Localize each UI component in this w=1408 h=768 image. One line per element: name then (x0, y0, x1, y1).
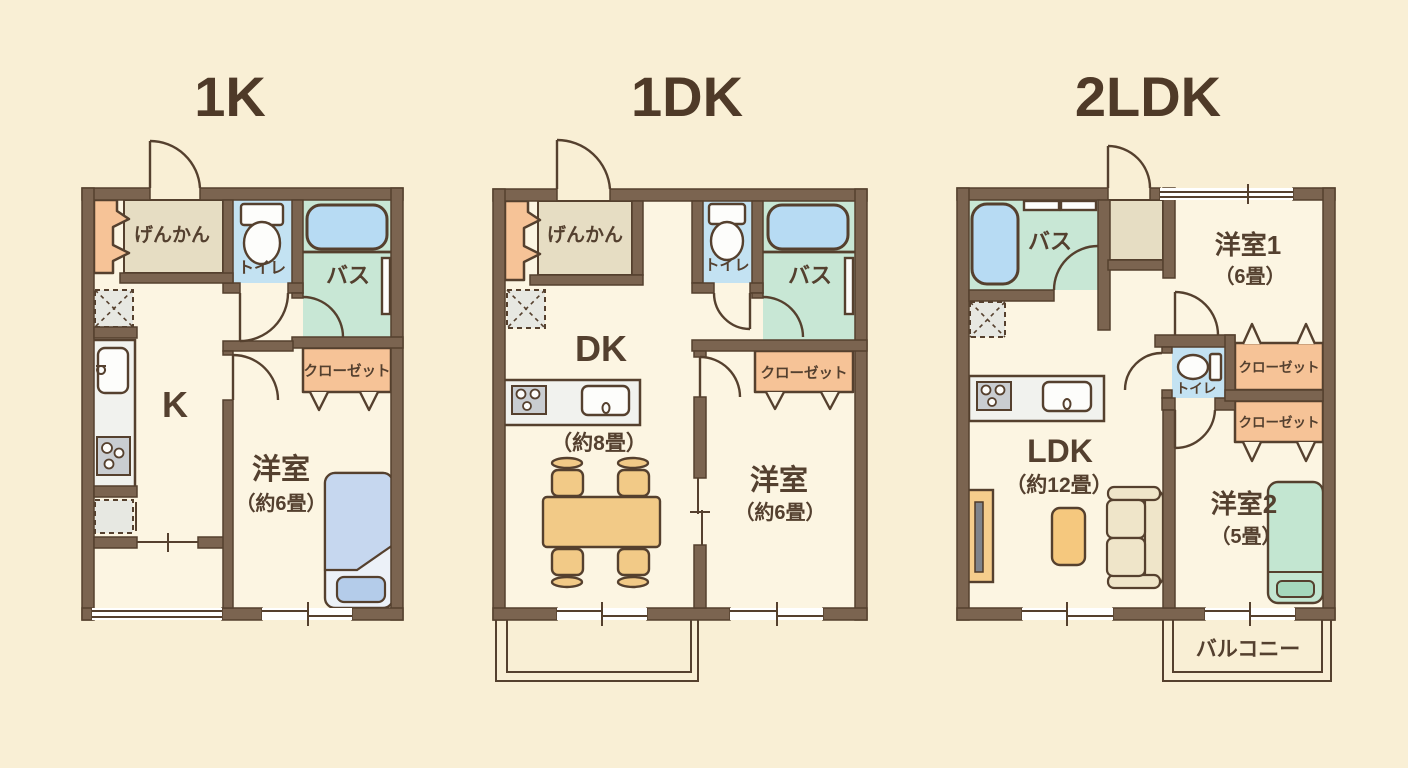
label-bath-1k: バス (326, 263, 370, 288)
sink-2ldk (1043, 382, 1091, 411)
floor-plan-2ldk: 2LDK (957, 65, 1335, 681)
toilet-bowl-1dk (711, 222, 743, 260)
tv-board-2ldk (967, 490, 993, 582)
bathtub-2ldk (972, 204, 1018, 284)
label-bedroom1-2ldk: 洋室1 (1215, 230, 1281, 260)
bath-shelf-2ldk-2 (1061, 201, 1096, 210)
label-bedroom-size-1k: （約6畳） (235, 491, 326, 515)
bathtub-1k (307, 205, 387, 249)
balcony-1dk (496, 620, 698, 681)
bathtub-1dk (768, 205, 848, 249)
label-bedroom2-size-2ldk: （5畳） (1210, 525, 1281, 548)
burner-2ldk-2 (996, 386, 1005, 395)
label-dk-size-1dk: （約8畳） (551, 431, 647, 455)
plan-title-1k: 1K (194, 65, 266, 128)
label-toilet-1dk: トイレ (704, 257, 749, 274)
fridge-space-1k (95, 500, 133, 533)
burner-2ldk-3 (988, 398, 996, 406)
toilet-tank-2ldk (1210, 354, 1221, 380)
label-bath-1dk: バス (788, 263, 832, 288)
label-closet2-2ldk: クローゼット (1239, 414, 1320, 430)
label-bedroom2-2ldk: 洋室2 (1211, 489, 1277, 519)
sink-1k (98, 348, 128, 393)
burner-1k-1 (102, 443, 112, 453)
label-ldk-2ldk: LDK (1027, 433, 1093, 469)
label-bedroom1-size-2ldk: （6畳） (1214, 265, 1285, 288)
floor-plan-1k: 1K (82, 65, 403, 626)
sink-1dk (582, 386, 629, 415)
burner-2ldk-1 (982, 386, 991, 395)
label-closet-1dk: クローゼット (761, 364, 848, 382)
label-toilet-2ldk: トイレ (1176, 381, 1217, 396)
toilet-bowl-2ldk (1178, 355, 1208, 379)
bath-shelf-2ldk-1 (1024, 201, 1059, 210)
label-entrance-1dk: げんかん (547, 224, 623, 246)
floor-plans-canvas: 1K (0, 0, 1408, 768)
label-toilet-1k: トイレ (238, 260, 286, 277)
burner-1dk-2 (531, 390, 540, 399)
plan-title-2ldk: 2LDK (1075, 65, 1221, 128)
plan-title-1dk: 1DK (631, 65, 743, 128)
label-bedroom-size-1dk: （約6畳） (734, 500, 825, 524)
label-closet-1k: クローゼット (304, 362, 391, 380)
burner-1dk-3 (523, 402, 531, 410)
entrance-floor-2ldk (1108, 200, 1163, 260)
bath-panel-1k (382, 258, 390, 314)
coffee-table-2ldk (1052, 508, 1085, 565)
label-bath-2ldk: バス (1028, 229, 1072, 254)
stove-1k (97, 437, 130, 475)
burner-1k-3 (105, 460, 114, 469)
label-bedroom-1k: 洋室 (252, 452, 310, 486)
toilet-bowl-1k (244, 222, 280, 264)
label-ldk-size-2ldk: （約12畳） (1005, 473, 1112, 497)
burner-1k-2 (115, 449, 124, 458)
bath-panel-1dk (845, 258, 853, 314)
label-bedroom-1dk: 洋室 (750, 463, 808, 497)
floor-plan-1dk: 1DK (493, 65, 867, 681)
label-entrance-1k: げんかん (134, 224, 210, 246)
label-dk-1dk: DK (575, 328, 627, 369)
bed-1k (325, 473, 393, 608)
sofa-2ldk (1107, 487, 1163, 588)
label-balcony-2ldk: バルコニー (1196, 638, 1301, 661)
label-closet1-2ldk: クローゼット (1239, 359, 1320, 375)
label-kitchen-1k: K (162, 384, 188, 425)
burner-1dk-1 (517, 390, 526, 399)
